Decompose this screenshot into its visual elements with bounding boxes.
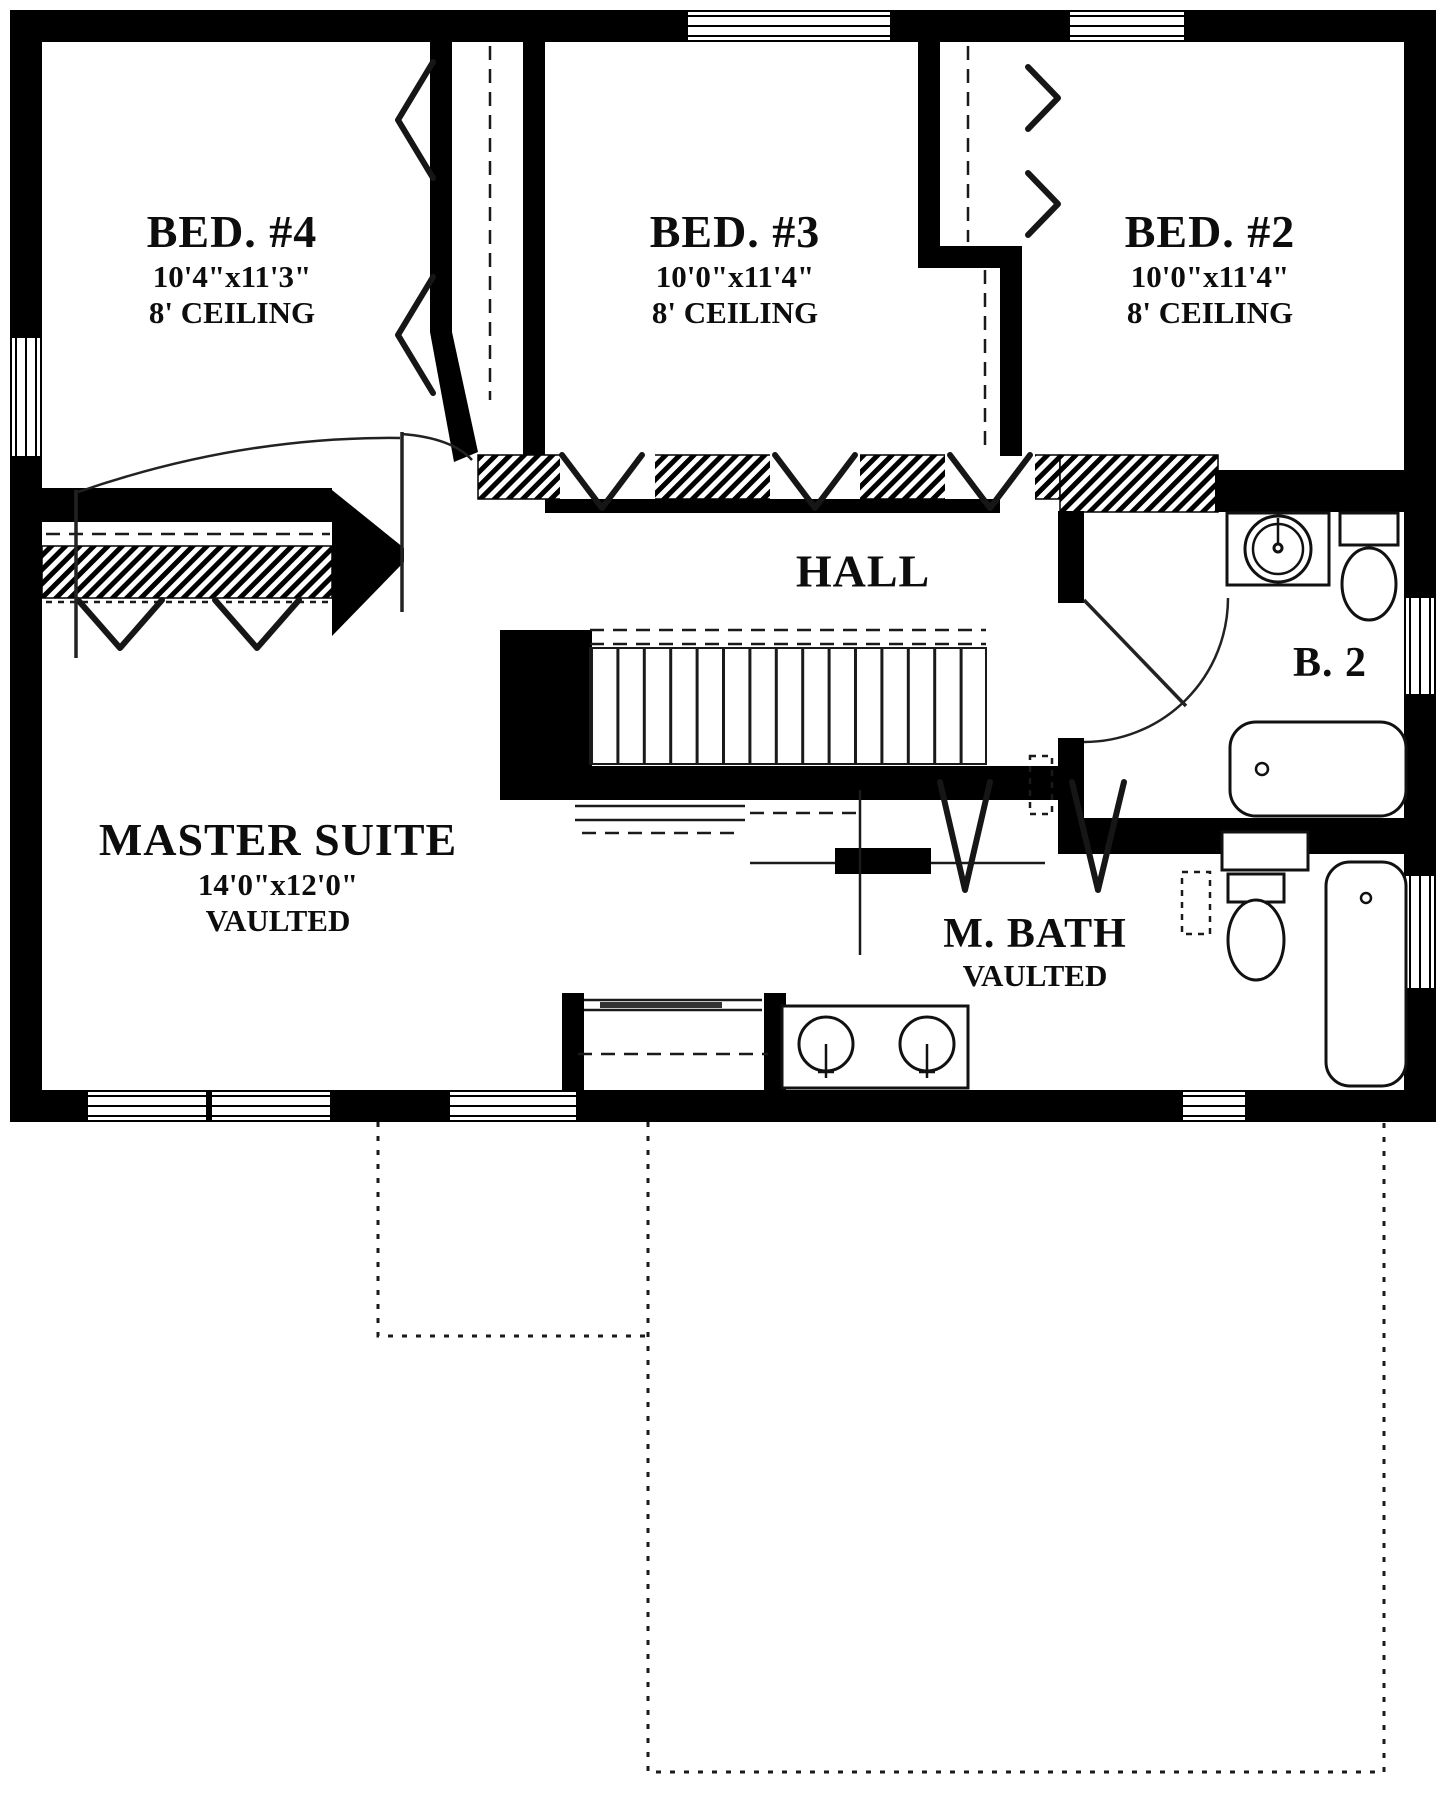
room-label-bath2: B. 2: [1293, 639, 1367, 687]
room-label-master: MASTER SUITE 14'0"x12'0" VAULTED: [99, 814, 457, 938]
room-name: BED. #2: [1125, 206, 1296, 259]
window: [450, 1092, 576, 1120]
room-name: B. 2: [1293, 639, 1367, 687]
window: [1183, 1092, 1245, 1120]
bathtub-icon: [1326, 862, 1406, 1086]
room-label-mbath: M. BATH VAULTED: [943, 910, 1127, 994]
counter: [1222, 832, 1308, 870]
window: [212, 1092, 330, 1120]
room-label-bed2: BED. #2 10'0"x11'4" 8' CEILING: [1125, 206, 1296, 330]
room-ceiling: 8' CEILING: [650, 294, 821, 330]
window: [688, 12, 890, 40]
window: [12, 338, 40, 456]
bathtub-icon: [1230, 722, 1406, 816]
floor-plan: BED. #4 10'4"x11'3" 8' CEILING BED. #3 1…: [0, 0, 1446, 1800]
toilet-icon: [1228, 874, 1284, 980]
room-name: HALL: [796, 546, 930, 599]
room-dims: 10'0"x11'4": [1125, 259, 1296, 295]
window: [1406, 598, 1434, 694]
room-dims: 14'0"x12'0": [99, 867, 457, 903]
room-note: VAULTED: [99, 902, 457, 938]
window: [88, 1092, 206, 1120]
room-dims: 10'0"x11'4": [650, 259, 821, 295]
room-label-bed4: BED. #4 10'4"x11'3" 8' CEILING: [147, 206, 318, 330]
window: [1070, 12, 1184, 40]
room-name: BED. #4: [147, 206, 318, 259]
room-ceiling: 8' CEILING: [1125, 294, 1296, 330]
room-name: MASTER SUITE: [99, 814, 457, 867]
room-note: VAULTED: [943, 958, 1127, 994]
toilet-icon: [1340, 513, 1398, 620]
room-name: BED. #3: [650, 206, 821, 259]
room-name: M. BATH: [943, 910, 1127, 958]
room-ceiling: 8' CEILING: [147, 294, 318, 330]
window: [1406, 876, 1434, 988]
plumbing-chase: [1182, 872, 1210, 934]
stairs: [590, 630, 986, 764]
room-dims: 10'4"x11'3": [147, 259, 318, 295]
sink-icon: [1245, 516, 1311, 582]
room-label-hall: HALL: [796, 546, 930, 599]
room-label-bed3: BED. #3 10'0"x11'4" 8' CEILING: [650, 206, 821, 330]
patio-outline: [378, 1122, 1384, 1772]
